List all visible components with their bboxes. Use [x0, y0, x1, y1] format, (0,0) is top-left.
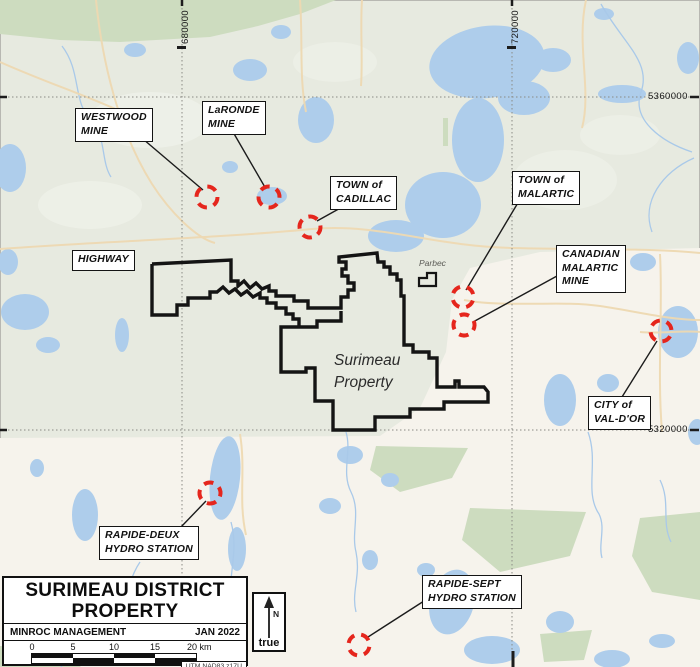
- property-name-label: Surimeau Property: [334, 350, 400, 395]
- map-figure: WESTWOOD MINE LaRONDE MINE TOWN of CADIL…: [0, 0, 700, 667]
- lake: [124, 43, 146, 57]
- easting-tick-dash: [507, 46, 516, 49]
- scale-tick-label: 10: [103, 642, 125, 652]
- northing-label-5320000: 5320000: [648, 424, 688, 435]
- road: [582, 0, 586, 128]
- map-title: SURIMEAU DISTRICT PROPERTY: [4, 578, 246, 623]
- lake: [544, 374, 576, 426]
- lake: [452, 98, 504, 182]
- callout-town-of-cadillac: TOWN of CADILLAC: [330, 176, 397, 210]
- lake: [535, 48, 571, 72]
- title-block: SURIMEAU DISTRICT PROPERTY MINROC MANAGE…: [2, 576, 248, 666]
- north-true-label: true: [254, 637, 284, 649]
- lake: [233, 59, 267, 81]
- lake: [337, 446, 363, 464]
- callout-town-of-malartic: TOWN of MALARTIC: [512, 171, 580, 205]
- company-date-row: MINROC MANAGEMENT JAN 2022: [4, 623, 246, 640]
- road: [640, 331, 700, 332]
- company-name: MINROC MANAGEMENT: [10, 626, 126, 639]
- lake: [271, 25, 291, 39]
- lake: [649, 634, 675, 648]
- marker-westwood-mine: [197, 187, 218, 208]
- scale-bar: [31, 653, 197, 664]
- lake: [597, 374, 619, 392]
- parbec-claim-outline: [419, 273, 436, 286]
- map-title-line2: PROPERTY: [4, 601, 246, 622]
- marker-town-of-cadillac: [298, 215, 322, 239]
- leader-laronde: [233, 132, 266, 189]
- lake: [72, 489, 98, 541]
- callout-rapide-sept-hydro: RAPIDE-SEPT HYDRO STATION: [422, 575, 522, 609]
- lake: [228, 527, 246, 571]
- datum-label: UTM NAD83 z17U: [181, 661, 247, 667]
- easting-label-680000: 680000: [180, 10, 191, 44]
- lake: [298, 97, 334, 143]
- lake: [381, 473, 399, 487]
- lake: [0, 144, 26, 192]
- lake: [498, 81, 550, 115]
- forest-patch: [540, 630, 592, 662]
- river: [649, 158, 694, 232]
- lake: [115, 318, 129, 352]
- north-n-label: N: [273, 609, 279, 619]
- land-mottle: [580, 115, 660, 155]
- scale-bar-segment: [114, 658, 155, 663]
- scale-bar-section: 0 5 10 15 20 km UTM NAD83 z17U: [4, 640, 246, 667]
- lake: [677, 42, 699, 74]
- lake: [1, 294, 49, 330]
- map-title-line1: SURIMEAU DISTRICT: [4, 580, 246, 601]
- scale-bar-segment: [73, 658, 114, 663]
- scale-tick-label: 5: [62, 642, 84, 652]
- scale-bar-segment: [32, 658, 73, 663]
- callout-laronde-mine: LaRONDE MINE: [202, 101, 266, 135]
- lake: [546, 611, 574, 633]
- callout-rapide-deux-hydro: RAPIDE-DEUX HYDRO STATION: [99, 526, 199, 560]
- land-mottle: [38, 181, 142, 229]
- north-arrow-head: [264, 596, 274, 608]
- callout-westwood-mine: WESTWOOD MINE: [75, 108, 153, 142]
- lake: [319, 498, 341, 514]
- parbec-label: Parbec: [419, 259, 446, 268]
- callout-canadian-malartic-mine: CANADIAN MALARTIC MINE: [556, 245, 626, 293]
- lake: [630, 253, 656, 271]
- scale-tick-label: 0: [21, 642, 43, 652]
- lake: [222, 161, 238, 173]
- northing-label-5360000: 5360000: [648, 91, 688, 102]
- callout-highway: HIGHWAY: [72, 250, 135, 271]
- road: [361, 0, 362, 86]
- land-mottle: [293, 42, 377, 82]
- road: [0, 62, 122, 112]
- easting-label-720000: 720000: [510, 10, 521, 44]
- forest-patch: [443, 118, 448, 146]
- lake: [36, 337, 60, 353]
- property-boundary-outline: [299, 311, 341, 327]
- easting-tick-dash: [177, 46, 186, 49]
- scale-end-label: 20 km: [187, 642, 212, 652]
- callout-city-of-valdor: CITY of VAL-D'OR: [588, 396, 651, 430]
- north-arrow: N true: [252, 592, 286, 652]
- lake: [362, 550, 378, 570]
- lake: [0, 249, 18, 275]
- map-canvas: [0, 0, 700, 667]
- map-date: JAN 2022: [195, 626, 240, 639]
- scale-tick-label: 15: [144, 642, 166, 652]
- lake: [30, 459, 44, 477]
